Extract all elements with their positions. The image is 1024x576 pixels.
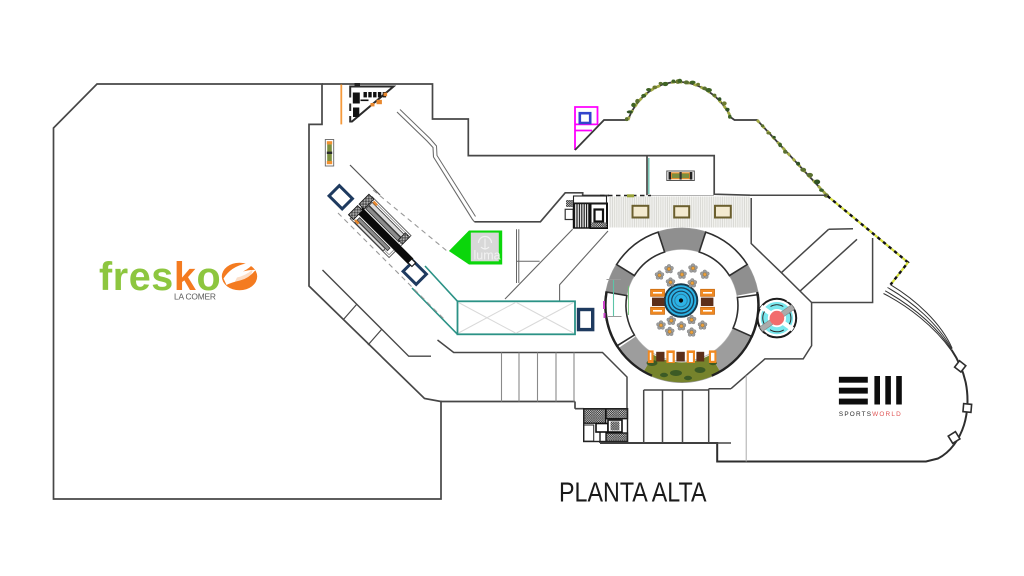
svg-text:PLANTA ALTA: PLANTA ALTA (559, 477, 707, 508)
svg-text:LA COMER: LA COMER (174, 292, 219, 302)
svg-text:SPORTSWORLD: SPORTSWORLD (839, 411, 902, 418)
svg-text:luma: luma (474, 249, 501, 263)
